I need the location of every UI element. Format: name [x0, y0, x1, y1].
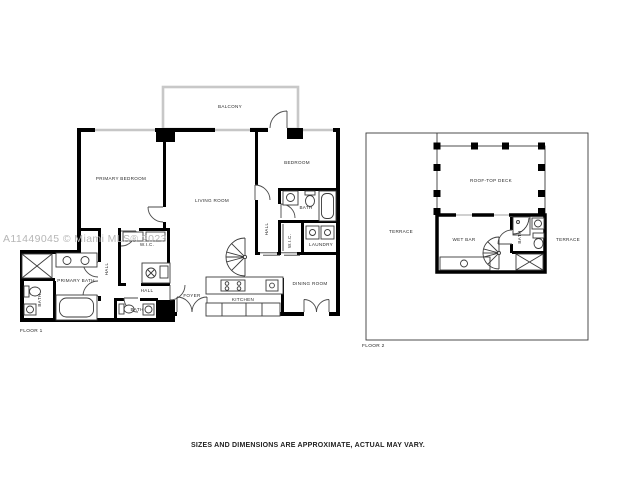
- room-label-hall-center: HALL: [141, 288, 154, 293]
- room-label-foyer: FOYER: [183, 293, 201, 298]
- sink-icon: [283, 191, 298, 205]
- closet-icon: [516, 254, 543, 270]
- disclaimer-text: SIZES AND DIMENSIONS ARE APPROXIMATE, AC…: [191, 442, 425, 449]
- room-label-wet-bar: WET BAR: [453, 237, 476, 242]
- room-label-bath-left: BATH: [37, 293, 42, 306]
- room-label-primary-bath: PRIMARY BATH: [57, 278, 95, 283]
- kitchen-lower-counter: [206, 303, 280, 316]
- shower-icon: [22, 254, 52, 278]
- room-label-kitchen: KITCHEN: [232, 297, 254, 302]
- washer-dryer-icon: [306, 226, 334, 239]
- room-label-bath-floor2: BATH: [517, 230, 522, 243]
- floorplan-image: BALCONY PRIMARY BEDROOM LIVING ROOM BEDR…: [0, 0, 640, 480]
- room-label-bedroom: BEDROOM: [284, 160, 310, 165]
- column: [287, 128, 303, 139]
- room-label-hall-right: HALL: [264, 223, 269, 236]
- room-label-bath-center: BATH: [130, 307, 143, 312]
- floor1-plan: BALCONY PRIMARY BEDROOM LIVING ROOM BEDR…: [20, 87, 340, 334]
- room-label-hall-left: HALL: [104, 263, 109, 276]
- floor2-plan: ROOF-TOP DECK TERRACE WET BAR BATH TERRA…: [362, 133, 588, 349]
- sink-icon: [24, 304, 36, 315]
- room-label-bedroom-bath: BATH: [299, 205, 312, 210]
- toilet-icon: [533, 233, 544, 249]
- floor2-terrace-outline: [366, 133, 588, 340]
- room-label-terrace-left: TERRACE: [389, 229, 413, 234]
- mls-watermark: A11449045 © Miami MLS® 2023: [3, 233, 167, 245]
- bathtub-icon: [319, 191, 336, 221]
- room-label-terrace-right: TERRACE: [556, 237, 580, 242]
- bathtub-icon: [56, 295, 97, 320]
- floor2-fixtures: [440, 217, 544, 270]
- sink-icon: [532, 218, 544, 229]
- wet-bar-counter: [440, 257, 490, 270]
- room-label-balcony: BALCONY: [218, 104, 242, 109]
- floorplan-page: BALCONY PRIMARY BEDROOM LIVING ROOM BEDR…: [0, 0, 640, 480]
- room-label-primary-bedroom: PRIMARY BEDROOM: [96, 176, 146, 181]
- floor1-label: FLOOR 1: [20, 328, 43, 334]
- floor1-walls: [20, 127, 340, 322]
- room-label-laundry: LAUNDRY: [309, 242, 333, 247]
- room-label-wic-right: W.I.C.: [287, 234, 292, 248]
- sink-icon: [143, 304, 154, 315]
- spiral-stair-icon: [226, 238, 247, 276]
- water-heater-icon: [142, 263, 170, 283]
- room-label-living-room: LIVING ROOM: [195, 198, 229, 203]
- room-label-dining-room: DINING ROOM: [293, 281, 328, 286]
- double-vanity-icon: [56, 253, 97, 267]
- room-label-rooftop-deck: ROOF-TOP DECK: [470, 178, 513, 183]
- floor2-label: FLOOR 2: [362, 343, 385, 349]
- kitchen-counter: [206, 277, 283, 294]
